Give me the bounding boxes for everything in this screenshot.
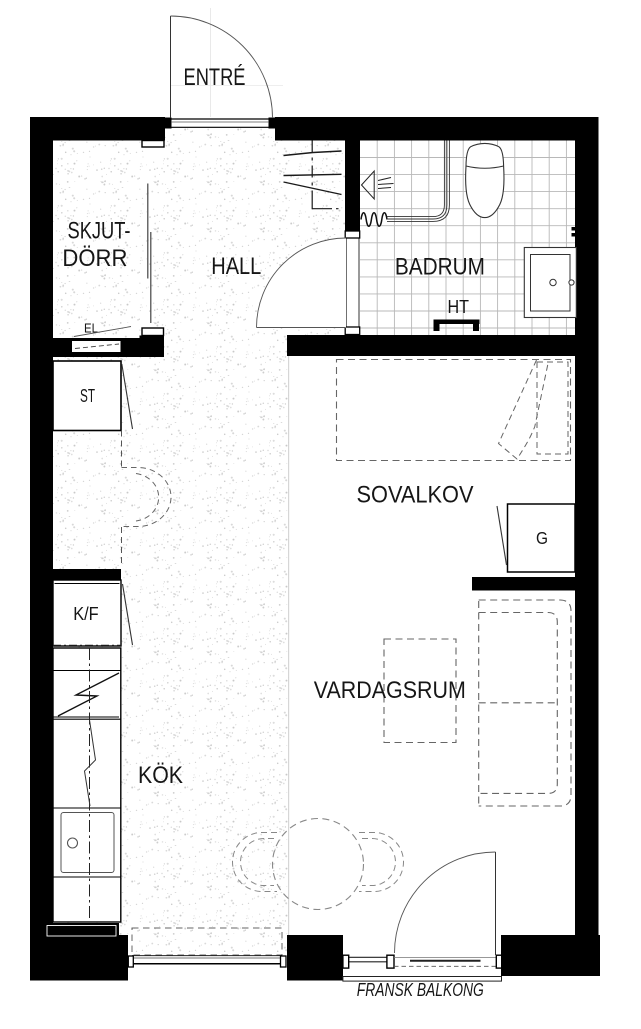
- svg-text:G: G: [536, 528, 548, 548]
- svg-text:DÖRR: DÖRR: [62, 245, 127, 272]
- svg-text:K/F: K/F: [73, 604, 99, 624]
- svg-text:HT: HT: [448, 296, 470, 317]
- svg-text:SOVALKOV: SOVALKOV: [357, 481, 475, 508]
- svg-text:HALL: HALL: [211, 253, 261, 280]
- svg-text:KÖK: KÖK: [138, 762, 184, 789]
- svg-text:SKJUT-: SKJUT-: [68, 218, 131, 245]
- svg-text:ENTRÉ: ENTRÉ: [184, 64, 246, 91]
- svg-text:FRANSK BALKONG: FRANSK BALKONG: [357, 979, 484, 1000]
- svg-text:BADRUM: BADRUM: [395, 253, 485, 280]
- svg-text:VARDAGSRUM: VARDAGSRUM: [314, 677, 466, 704]
- svg-text:ST: ST: [80, 386, 95, 406]
